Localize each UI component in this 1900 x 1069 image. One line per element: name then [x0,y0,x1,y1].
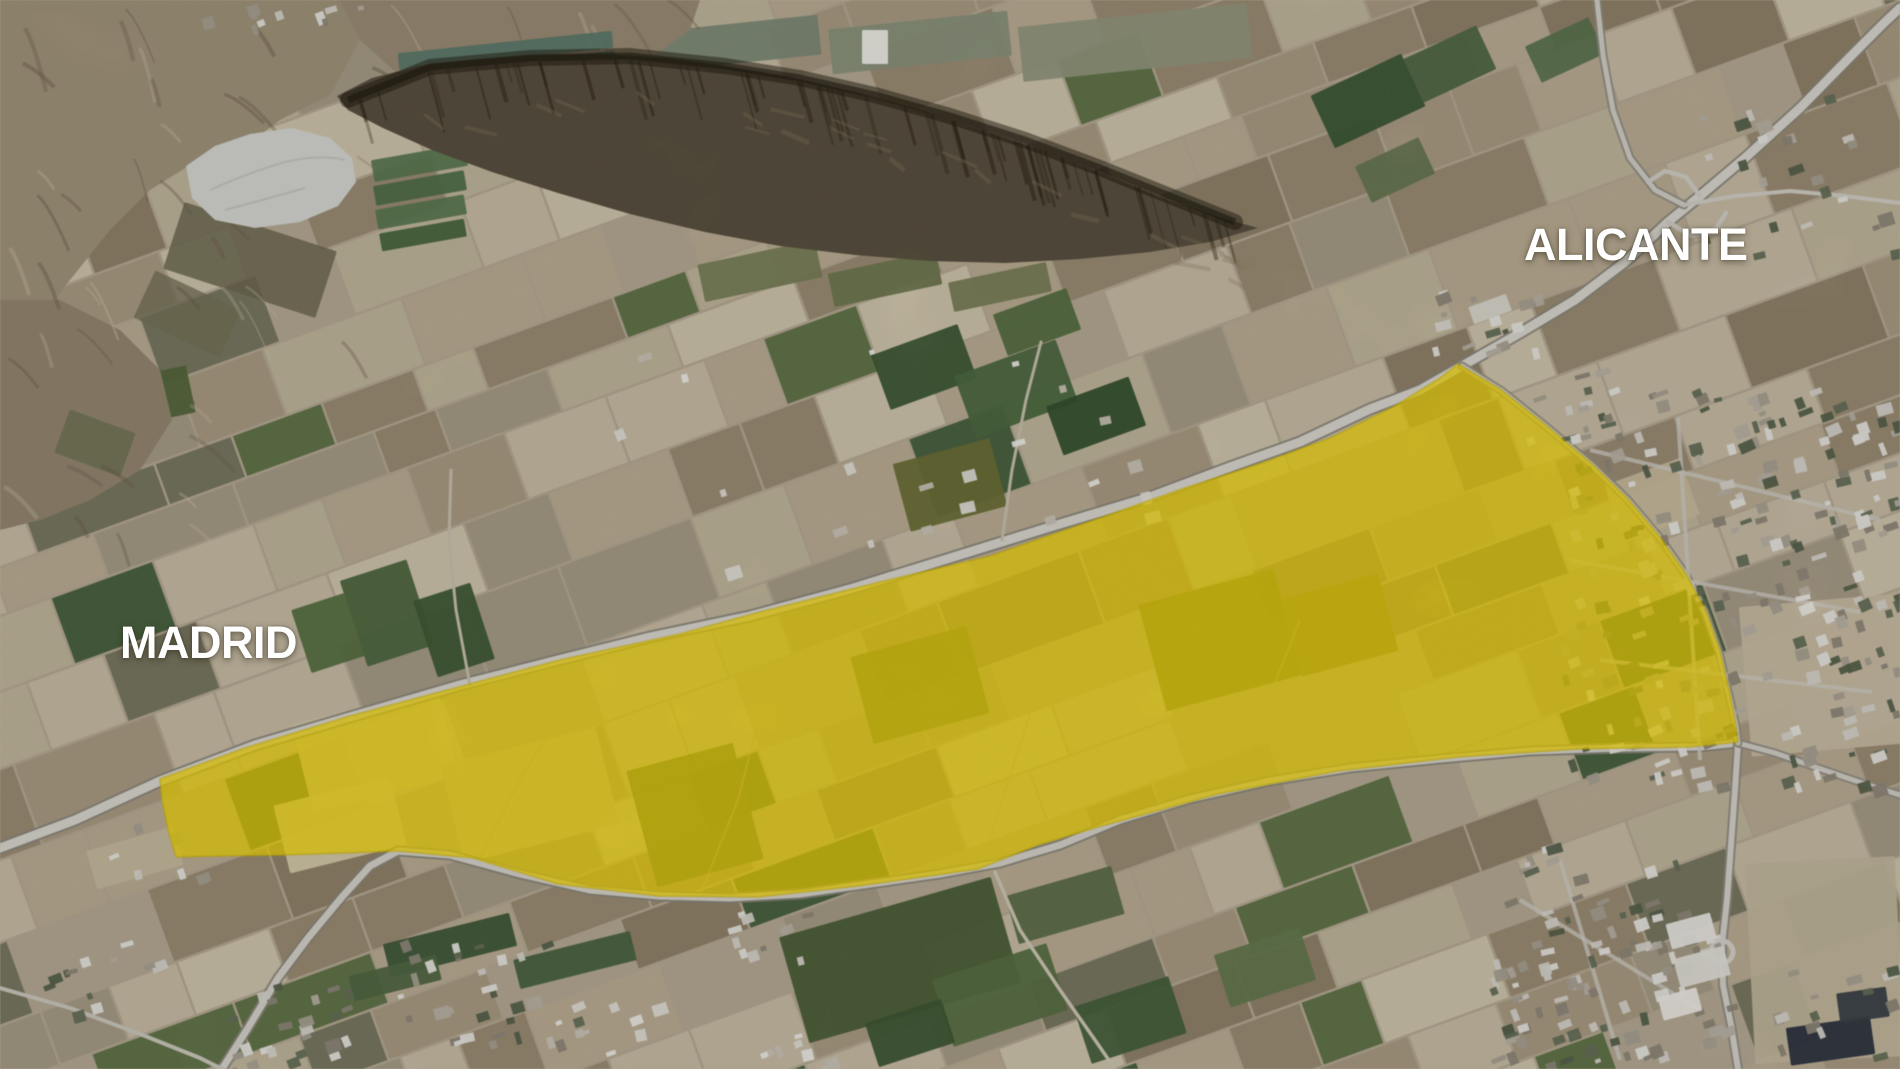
map-label-madrid: MADRID [120,620,297,665]
satellite-imagery [0,0,1900,1069]
aerial-map: MADRID ALICANTE [0,0,1900,1069]
map-label-alicante: ALICANTE [1524,222,1747,267]
grain-overlay [0,0,1900,1069]
